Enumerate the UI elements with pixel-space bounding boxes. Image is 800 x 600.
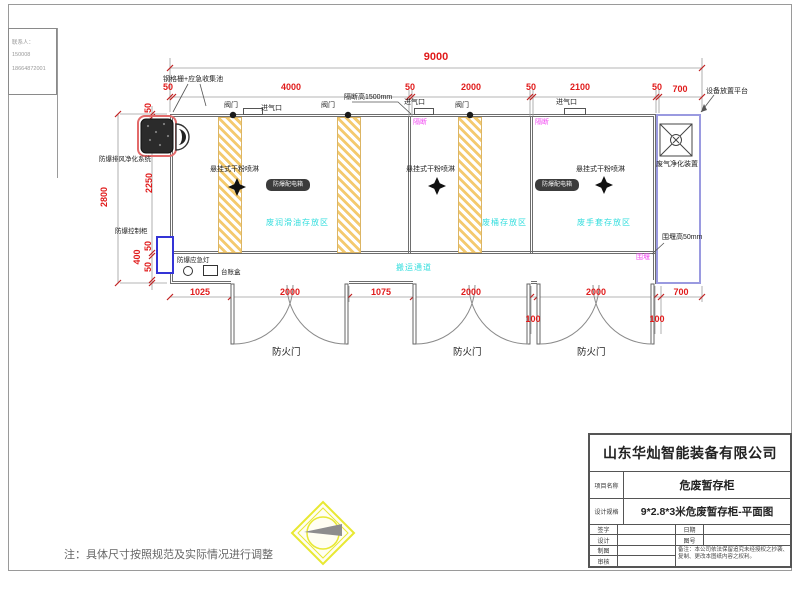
dim-bottom-1025: 1025 bbox=[178, 287, 222, 297]
corner-note-line2: 150008 bbox=[12, 52, 30, 58]
spec-value-cell: 9*2.8*3米危废暂存柜-平面图 bbox=[624, 499, 790, 525]
remark-cell: 备注：本公司依法保留追究未经授权之抄袭、复制、更改本图纸内容之权利。 bbox=[676, 546, 790, 567]
sign-label-cell: 签字 bbox=[590, 525, 618, 535]
fire-door-label-3: 防火门 bbox=[577, 344, 606, 358]
dim-overall-width: 9000 bbox=[414, 51, 458, 63]
door-opening-1 bbox=[231, 280, 349, 285]
cabinet-outline bbox=[170, 114, 656, 284]
corner-note-line1: 联系人： bbox=[12, 38, 34, 46]
remark-text: 备注：本公司依法保留追究未经授权之抄袭、复制、更改本图纸内容之权利。 bbox=[676, 546, 790, 562]
corner-note-line3: 18664872001 bbox=[12, 66, 46, 72]
project-value-cell: 危废暂存柜 bbox=[624, 472, 790, 499]
control-cabinet-box bbox=[156, 236, 174, 274]
zone3-label: 废手套存放区 bbox=[577, 217, 631, 228]
zone2-label: 废桶存放区 bbox=[482, 217, 527, 228]
audit-value-cell bbox=[618, 556, 676, 567]
valve-label-1: 阀门 bbox=[224, 100, 238, 110]
dim-left-overall: 2800 bbox=[99, 180, 109, 214]
company-cell: 山东华灿智能装备有限公司 bbox=[590, 435, 790, 472]
fire-door-label-1: 防火门 bbox=[272, 344, 301, 358]
air-inlet-vent-1 bbox=[243, 108, 263, 115]
audit-label-cell: 审核 bbox=[590, 556, 618, 567]
fig-value-cell bbox=[704, 535, 790, 546]
dim-left-50a: 50 bbox=[143, 96, 153, 120]
partition-label-2: 隔断 bbox=[535, 117, 549, 127]
date-value-cell bbox=[704, 525, 790, 535]
partition-wall-2 bbox=[530, 117, 533, 254]
margin-line bbox=[57, 28, 58, 178]
company-name: 山东华灿智能装备有限公司 bbox=[603, 443, 777, 463]
drawing-sheet: 联系人： 150008 18664872001 bbox=[0, 0, 800, 600]
spray-label-1: 悬挂式干粉喷淋 bbox=[210, 164, 259, 174]
fire-door-label-2: 防火门 bbox=[453, 344, 482, 358]
door-opening-3 bbox=[537, 280, 655, 285]
distribution-box-badge-2: 防爆配电箱 bbox=[535, 179, 579, 191]
zone1-label: 废润滑油存放区 bbox=[266, 217, 329, 228]
draft-label: 制图 bbox=[597, 546, 609, 555]
corridor-divider-wall bbox=[173, 251, 656, 254]
dim-top-2000: 2000 bbox=[449, 82, 493, 92]
bottom-note: 注：具体尺寸按照规范及实际情况进行调整 bbox=[64, 546, 273, 562]
ledger-box-symbol bbox=[203, 265, 218, 276]
dim-bottom-2000b: 2000 bbox=[449, 287, 493, 297]
dim-top-2100: 2100 bbox=[558, 82, 602, 92]
grating-label: 钢格栅+应急收集池 bbox=[163, 74, 223, 84]
title-block: 山东华灿智能装备有限公司 项目名称 危废暂存柜 设计规格 9*2.8*3米危废暂… bbox=[588, 433, 792, 568]
inlet-label-1: 进气口 bbox=[261, 103, 282, 113]
draft-value-cell bbox=[618, 546, 676, 556]
sign-label: 签字 bbox=[597, 525, 609, 534]
design-value-cell bbox=[618, 535, 676, 546]
sign-value-cell bbox=[618, 525, 676, 535]
spec-label-cell: 设计规格 bbox=[590, 499, 624, 525]
door-opening-2 bbox=[413, 280, 531, 285]
hatched-column-2 bbox=[337, 117, 361, 253]
hatched-column-3 bbox=[458, 117, 482, 253]
distribution-box-badge-1: 防爆配电箱 bbox=[266, 179, 310, 191]
air-inlet-vent-3 bbox=[564, 108, 586, 115]
dim-bottom-2000c: 2000 bbox=[574, 287, 618, 297]
project-label-cell: 项目名称 bbox=[590, 472, 624, 499]
bund-label: 围堰 bbox=[636, 252, 650, 262]
purifier-label: 废气净化装置 bbox=[656, 159, 698, 169]
dim-bottom-1075: 1075 bbox=[359, 287, 403, 297]
inlet-label-2: 进气口 bbox=[404, 97, 425, 107]
dim-bottom-700: 700 bbox=[659, 287, 703, 297]
dim-bottom-2000a: 2000 bbox=[268, 287, 312, 297]
partition-height-label: 隔断高1500mm bbox=[344, 92, 392, 102]
project-label: 项目名称 bbox=[594, 481, 618, 490]
emergency-light-label: 防爆应急灯 bbox=[177, 254, 210, 264]
bund-height-label: 围堰高50mm bbox=[662, 232, 702, 242]
partition-label-1: 隔断 bbox=[413, 117, 427, 127]
control-cabinet-label: 防爆控制柜 bbox=[115, 225, 148, 235]
equipment-platform bbox=[656, 114, 701, 284]
dim-top-700: 700 bbox=[662, 84, 698, 94]
platform-label: 设备放置平台 bbox=[706, 86, 748, 96]
fig-label: 图号 bbox=[683, 536, 695, 545]
inlet-label-3: 进气口 bbox=[556, 97, 577, 107]
project-value: 危废暂存柜 bbox=[680, 477, 735, 493]
design-label-cell: 设计 bbox=[590, 535, 618, 546]
spray-label-3: 悬挂式干粉喷淋 bbox=[576, 164, 625, 174]
spray-label-2: 悬挂式干粉喷淋 bbox=[406, 164, 455, 174]
draft-label-cell: 制图 bbox=[590, 546, 618, 556]
valve-label-3: 阀门 bbox=[455, 100, 469, 110]
spec-value: 9*2.8*3米危废暂存柜-平面图 bbox=[641, 504, 773, 519]
spec-label: 设计规格 bbox=[594, 507, 618, 516]
air-inlet-vent-2 bbox=[414, 108, 434, 115]
emergency-light-symbol bbox=[183, 266, 193, 276]
dim-top-50b: 50 bbox=[398, 82, 422, 92]
dim-left-400: 400 bbox=[132, 243, 142, 271]
dim-top-50c: 50 bbox=[519, 82, 543, 92]
exhaust-system-label: 防爆排风净化系统 bbox=[99, 153, 151, 163]
dim-left-50c: 50 bbox=[143, 255, 153, 279]
audit-label: 审核 bbox=[597, 557, 609, 566]
ledger-box-label: 台账盒 bbox=[221, 266, 241, 276]
hatched-column-1 bbox=[218, 117, 242, 253]
fig-label-cell: 图号 bbox=[676, 535, 704, 546]
dim-top-4000: 4000 bbox=[269, 82, 313, 92]
dim-gap-100b: 100 bbox=[642, 314, 672, 324]
dim-gap-100a: 100 bbox=[518, 314, 548, 324]
partition-wall-1 bbox=[408, 117, 411, 254]
date-label: 日期 bbox=[683, 525, 695, 534]
valve-label-2: 阀门 bbox=[321, 100, 335, 110]
dim-left-2250: 2250 bbox=[144, 168, 154, 198]
design-label: 设计 bbox=[597, 536, 609, 545]
corridor-label: 搬运通道 bbox=[396, 262, 432, 273]
date-label-cell: 日期 bbox=[676, 525, 704, 535]
